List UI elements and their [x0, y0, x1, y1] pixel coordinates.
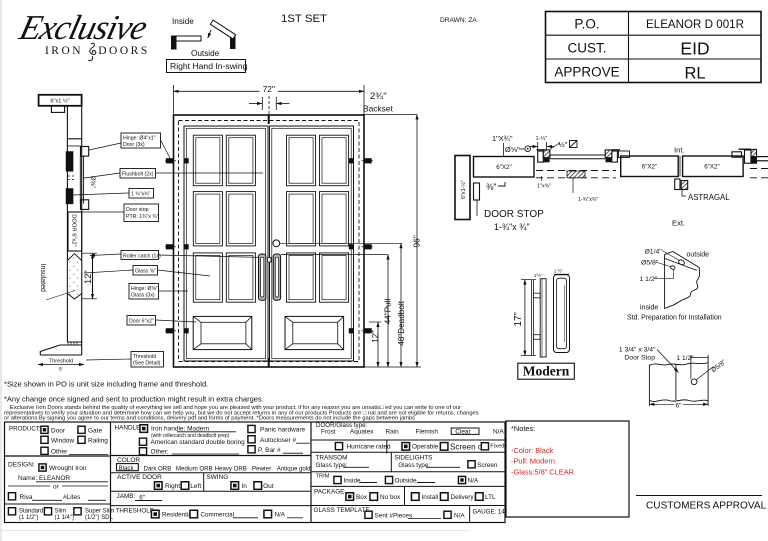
svg-text:ASTRAGAL: ASTRAGAL: [688, 193, 730, 202]
svg-text:Glass type:: Glass type:: [398, 462, 430, 469]
svg-text:Hinge: Ø4"x1": Hinge: Ø4"x1": [123, 136, 156, 142]
svg-text:Screen or: Screen or: [450, 442, 485, 451]
svg-text:Sent #Pieces: Sent #Pieces: [375, 512, 413, 519]
svg-text:Hurricane rated: Hurricane rated: [347, 444, 391, 451]
svg-text:Int.: Int.: [674, 146, 685, 155]
svg-text:(with rollercatch and deadbolt: (with rollercatch and deadbolt prep): [151, 433, 230, 439]
svg-text:Residential: Residential: [162, 511, 193, 518]
svg-text:N/A: N/A: [275, 511, 286, 518]
svg-text:Delivery: Delivery: [451, 494, 475, 501]
svg-text:Door: Door: [51, 427, 66, 434]
svg-text:Commercial: Commercial: [201, 511, 235, 518]
svg-text:or: or: [53, 483, 60, 490]
svg-text:Riva: Riva: [20, 494, 33, 501]
svg-text:SWING: SWING: [206, 474, 228, 481]
svg-text:Ø⅝": Ø⅝": [89, 176, 95, 188]
svg-text:5": 5": [59, 367, 64, 373]
svg-text:Modern: Modern: [523, 364, 570, 379]
svg-text:Ext.: Ext.: [672, 219, 685, 228]
svg-text:Dark ORB: Dark ORB: [144, 465, 172, 472]
svg-text:N/A: N/A: [493, 429, 504, 436]
svg-text:COLOR: COLOR: [117, 457, 140, 464]
svg-text:In: In: [242, 483, 248, 490]
svg-text:Outside: Outside: [395, 477, 417, 484]
svg-text:Insulated: Insulated: [39, 264, 46, 293]
svg-text:Glass (3x): Glass (3x): [131, 293, 155, 299]
svg-text:TRIM: TRIM: [316, 473, 330, 479]
svg-text:Left: Left: [190, 483, 201, 490]
svg-text:1-¼": 1-¼": [536, 136, 548, 142]
svg-text:Flushbolt (2x): Flushbolt (2x): [122, 172, 154, 178]
svg-text:SIDELIGHTS: SIDELIGHTS: [394, 455, 432, 462]
svg-text:Gate: Gate: [88, 427, 102, 434]
svg-text:Pewter: Pewter: [252, 465, 271, 472]
svg-text:Other: Other: [51, 448, 68, 455]
svg-text:Door (3x): Door (3x): [123, 142, 145, 148]
svg-text:(See Detail): (See Detail): [133, 361, 161, 367]
svg-text:PTR: 1¾"x ¾": PTR: 1¾"x ¾": [126, 214, 159, 220]
svg-text:inside: inside: [640, 305, 658, 312]
svg-text:6"X2": 6"X2": [704, 164, 719, 171]
svg-text:44"Pull: 44"Pull: [383, 298, 392, 324]
svg-text:CUSTOMERS APPROVAL: CUSTOMERS APPROVAL: [646, 501, 767, 512]
svg-text:Ø⅝": Ø⅝": [505, 145, 520, 154]
svg-text:TRANSOM: TRANSOM: [316, 455, 348, 462]
svg-text:No box: No box: [380, 494, 401, 501]
svg-text:Black: Black: [119, 465, 135, 472]
svg-text:6"X2": 6"X2": [496, 164, 511, 171]
svg-text:Outside: Outside: [191, 49, 220, 58]
svg-text:96": 96": [412, 235, 422, 247]
svg-text:1"X¾": 1"X¾": [492, 134, 513, 143]
svg-text:Roller catch (1x): Roller catch (1x): [123, 254, 161, 260]
svg-text:*Notes:: *Notes:: [511, 424, 535, 433]
svg-text:#Lites: #Lites: [63, 494, 81, 501]
svg-text:Window: Window: [51, 437, 74, 444]
svg-text:Threshold: Threshold: [49, 359, 73, 365]
svg-text:1 1/2": 1 1/2": [677, 355, 695, 362]
svg-text:Frost: Frost: [321, 429, 336, 436]
svg-text:½": ½": [559, 140, 568, 149]
svg-text:GAUGE: 14: GAUGE: 14: [473, 509, 506, 516]
svg-text:Ø5/8": Ø5/8": [641, 260, 659, 267]
svg-text:DOORS: DOORS: [98, 45, 149, 57]
svg-text:Name:: Name:: [18, 475, 37, 482]
svg-text:CUST.: CUST.: [567, 41, 606, 56]
svg-text:Railing: Railing: [88, 437, 108, 444]
svg-text:1 ½": 1 ½": [554, 269, 563, 274]
svg-text:*Any change once signed and se: *Any change once signed and sent to prod…: [4, 394, 264, 403]
svg-text:Glass type:: Glass type:: [316, 462, 348, 469]
svg-text:6"x1 ½": 6"x1 ½": [50, 98, 69, 105]
svg-text:or alterations.By signing you: or alterations.By signing you agree to o…: [4, 415, 415, 421]
svg-text:1 3/4" x 3/4": 1 3/4" x 3/4": [619, 347, 656, 354]
svg-text:48"Deadbolt: 48"Deadbolt: [397, 300, 406, 346]
svg-text:*Size shown in PO is unit size: *Size shown in PO is unit size including…: [4, 380, 208, 389]
svg-text:THRESHOLD: THRESHOLD: [116, 508, 155, 515]
svg-text:-Pull: Modern: -Pull: Modern: [511, 457, 555, 466]
svg-text:Threshold: Threshold: [133, 354, 156, 360]
svg-text:LTL: LTL: [485, 494, 496, 501]
svg-text:6"x1-½": 6"x1-½": [460, 180, 467, 199]
svg-text:1'½": 1'½": [534, 273, 543, 278]
svg-text:Other:: Other:: [151, 448, 169, 455]
svg-text:Right: Right: [165, 483, 180, 490]
svg-text:Medium ORB: Medium ORB: [176, 465, 213, 472]
svg-text:-Glass:5/8" CLEAR: -Glass:5/8" CLEAR: [511, 468, 574, 477]
svg-text:Standard: Standard: [19, 508, 43, 514]
svg-text:Ø1/4": Ø1/4": [645, 249, 663, 256]
svg-text:Operable: Operable: [412, 444, 439, 451]
svg-text:Flemish: Flemish: [416, 429, 439, 436]
svg-text:6": 6": [676, 403, 683, 410]
svg-text:Std. Preparation for Installat: Std. Preparation for Installation: [627, 315, 722, 322]
svg-text:⅜": ⅜": [486, 182, 496, 192]
svg-text:6"X2": 6"X2": [642, 164, 657, 171]
svg-text:PRODUCT:: PRODUCT:: [9, 426, 41, 433]
svg-text:DESIGN:: DESIGN:: [8, 462, 35, 469]
svg-text:Box: Box: [356, 494, 368, 501]
svg-text:(1/2") SDL: (1/2") SDL: [85, 515, 113, 521]
svg-text:1-¾"x ¾": 1-¾"x ¾": [494, 222, 530, 232]
svg-text:Door Stop: Door Stop: [624, 355, 655, 362]
svg-text:1 1/2": 1 1/2": [640, 276, 658, 283]
svg-text:HANDLE: HANDLE: [115, 425, 141, 432]
svg-text:1ST SET: 1ST SET: [281, 13, 327, 25]
svg-text:2¾": 2¾": [370, 91, 387, 102]
svg-text:ELEANOR: ELEANOR: [39, 475, 70, 482]
svg-text:1 ¾"x¾": 1 ¾"x¾": [131, 192, 150, 198]
svg-text:Super Slim: Super Slim: [85, 508, 114, 514]
svg-text:Panic hardware: Panic hardware: [260, 427, 306, 434]
svg-text:JAMB:: JAMB:: [117, 493, 136, 500]
svg-text:Inside: Inside: [344, 477, 361, 484]
svg-text:72": 72": [263, 84, 275, 94]
svg-text:DRAWN: ZA: DRAWN: ZA: [440, 17, 477, 24]
svg-text:RL: RL: [684, 65, 705, 83]
svg-text:12": 12": [371, 331, 380, 343]
svg-text:-Color: Black: -Color: Black: [511, 446, 554, 455]
svg-text:Backset: Backset: [363, 104, 393, 114]
svg-text:Rain: Rain: [386, 429, 400, 436]
svg-text:Aquatex: Aquatex: [350, 429, 374, 436]
svg-text:P.O.: P.O.: [574, 17, 599, 32]
svg-text:Out: Out: [263, 483, 274, 490]
svg-text:1"x¾": 1"x¾": [537, 184, 551, 190]
svg-text:APPROVE: APPROVE: [554, 65, 619, 80]
svg-text:Glass ⅝": Glass ⅝": [135, 269, 156, 275]
svg-text:Autocloser #: Autocloser #: [260, 437, 297, 444]
svg-text:GLASS TEMPLATE: GLASS TEMPLATE: [314, 507, 370, 514]
svg-text:ELEANOR D 001R: ELEANOR D 001R: [646, 18, 744, 31]
svg-text:Install: Install: [422, 494, 439, 501]
svg-text:P. Bar #: P. Bar #: [258, 447, 281, 454]
svg-text:Inside: Inside: [172, 17, 194, 26]
svg-text:Hinge: Ø⅝": Hinge: Ø⅝": [131, 286, 158, 292]
svg-text:Right Hand In-swing: Right Hand In-swing: [170, 61, 248, 71]
svg-text:DOOR STOP: DOOR STOP: [484, 209, 544, 220]
svg-text:Exclusive: Exclusive: [15, 7, 151, 46]
svg-text:(1 1/4"): (1 1/4"): [55, 515, 74, 521]
svg-text:17": 17": [513, 312, 524, 327]
svg-text:ACTIVE DOOR: ACTIVE DOOR: [117, 474, 162, 481]
svg-text:N/A: N/A: [454, 512, 465, 519]
svg-text:Fixed: Fixed: [490, 444, 504, 450]
svg-text:Slim: Slim: [55, 508, 67, 514]
svg-text:American standard double borin: American standard double boring: [151, 439, 246, 446]
svg-text:IRON: IRON: [45, 45, 83, 57]
svg-text:Antique gold: Antique gold: [277, 465, 311, 472]
svg-text:Clear: Clear: [455, 428, 471, 435]
svg-text:N/A: N/A: [468, 477, 479, 484]
svg-text:DOOR 6"x2": DOOR 6"x2": [70, 214, 76, 246]
svg-text:outside: outside: [687, 252, 710, 259]
svg-text:Wrought Iron: Wrought Iron: [49, 465, 87, 472]
svg-text:EID: EID: [680, 39, 709, 59]
svg-text:1-¾"x¾": 1-¾"x¾": [578, 197, 598, 203]
svg-text:Door stop: Door stop: [126, 207, 149, 213]
svg-text:Door 6"x2": Door 6"x2": [129, 319, 154, 325]
svg-text:PACKAGE: PACKAGE: [314, 489, 344, 496]
svg-text:Heavy ORB: Heavy ORB: [215, 465, 247, 472]
svg-text:Screen: Screen: [477, 462, 498, 469]
svg-text:(1 1/2"): (1 1/2"): [19, 515, 38, 521]
